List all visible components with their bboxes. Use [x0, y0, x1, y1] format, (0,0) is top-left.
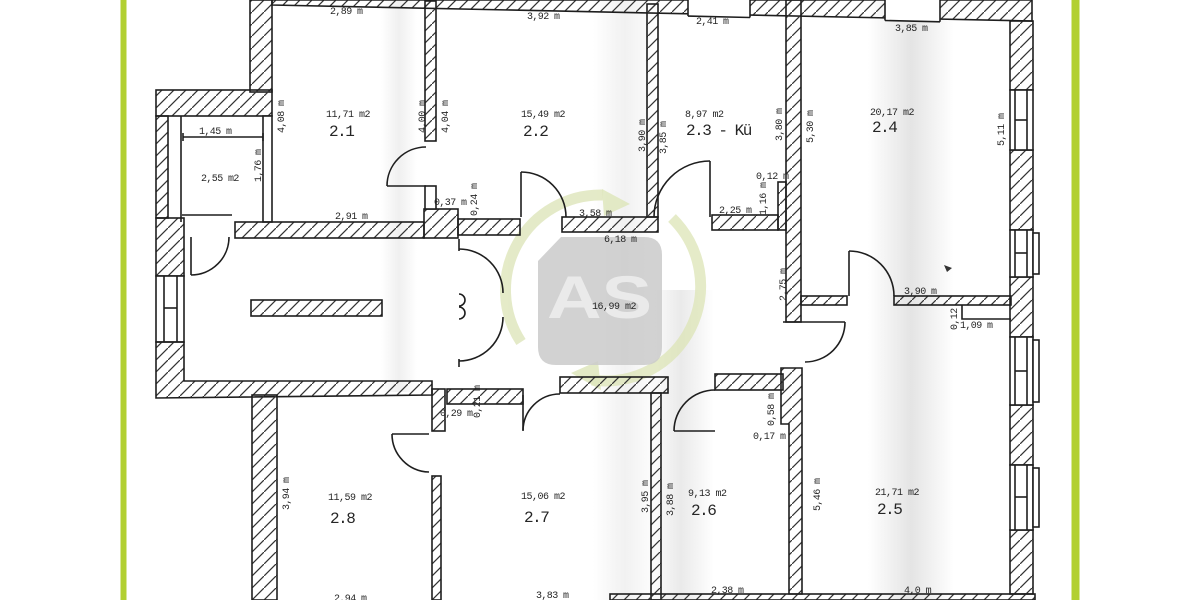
svg-text:11,71 m2: 11,71 m2 [326, 110, 371, 121]
svg-text:2.6: 2.6 [691, 502, 716, 520]
svg-text:1,45 m: 1,45 m [199, 127, 232, 138]
svg-text:6,18 m: 6,18 m [604, 235, 637, 246]
svg-text:3,58 m: 3,58 m [579, 209, 612, 220]
svg-text:3,85 m: 3,85 m [659, 121, 670, 154]
svg-text:0,12 m: 0,12 m [756, 172, 789, 183]
svg-text:2.4: 2.4 [872, 119, 897, 137]
svg-text:2.1: 2.1 [329, 123, 354, 141]
svg-text:2,75 m: 2,75 m [779, 268, 790, 301]
svg-text:3,92 m: 3,92 m [527, 12, 560, 23]
svg-text:1,16 m: 1,16 m [759, 182, 770, 215]
svg-text:1,09 m: 1,09 m [960, 321, 993, 332]
svg-text:3,90 m: 3,90 m [904, 287, 937, 298]
svg-text:2.8: 2.8 [330, 510, 355, 528]
svg-text:9,13 m2: 9,13 m2 [688, 489, 727, 500]
svg-text:0,17 m: 0,17 m [753, 432, 786, 443]
svg-text:20,17 m2: 20,17 m2 [870, 108, 915, 119]
svg-text:2.2: 2.2 [523, 123, 548, 141]
svg-text:AS: AS [547, 264, 652, 331]
svg-text:5,46 m: 5,46 m [813, 478, 824, 511]
svg-text:3,94 m: 3,94 m [282, 477, 293, 510]
svg-text:2,89 m: 2,89 m [330, 7, 363, 18]
svg-text:5,11 m: 5,11 m [997, 113, 1008, 146]
svg-text:4,04 m: 4,04 m [441, 100, 452, 133]
svg-text:15,49 m2: 15,49 m2 [521, 110, 566, 121]
svg-text:2,41 m: 2,41 m [696, 17, 729, 28]
svg-text:2,55 m2: 2,55 m2 [201, 174, 239, 185]
svg-text:0,24 m: 0,24 m [470, 183, 481, 216]
svg-text:2,91 m: 2,91 m [335, 212, 368, 223]
svg-text:3,83 m: 3,83 m [536, 591, 569, 600]
svg-text:11,59 m2: 11,59 m2 [328, 493, 373, 504]
svg-text:3,95 m: 3,95 m [641, 480, 652, 513]
svg-text:0,21 m: 0,21 m [473, 385, 484, 418]
svg-text:8,97 m2: 8,97 m2 [685, 110, 724, 121]
svg-text:1,76 m: 1,76 m [254, 149, 265, 182]
svg-text:2.7: 2.7 [524, 509, 549, 527]
svg-text:5,30 m: 5,30 m [806, 110, 817, 143]
svg-text:0,29 m: 0,29 m [440, 409, 473, 420]
svg-text:2.3 - Kü: 2.3 - Kü [686, 122, 752, 140]
svg-text:3,80 m: 3,80 m [775, 108, 786, 141]
svg-text:0,37 m: 0,37 m [434, 198, 467, 209]
svg-text:2,25 m: 2,25 m [719, 206, 752, 217]
svg-text:21,71 m2: 21,71 m2 [875, 488, 920, 499]
svg-text:0,58 m: 0,58 m [767, 393, 778, 426]
svg-text:0,12: 0,12 [950, 308, 961, 330]
svg-text:15,06 m2: 15,06 m2 [521, 492, 566, 503]
svg-text:2,38 m: 2,38 m [711, 586, 744, 597]
svg-text:4,00 m: 4,00 m [418, 100, 429, 133]
svg-text:3,88 m: 3,88 m [666, 483, 677, 516]
svg-text:16,99 m2: 16,99 m2 [592, 302, 637, 313]
svg-text:2,94 m: 2,94 m [334, 594, 367, 600]
svg-text:3,85 m: 3,85 m [895, 24, 928, 35]
svg-text:4,0 m: 4,0 m [904, 586, 932, 597]
svg-text:4,08 m: 4,08 m [277, 100, 288, 133]
svg-text:3,90 m: 3,90 m [638, 119, 649, 152]
svg-text:2.5: 2.5 [877, 501, 902, 519]
